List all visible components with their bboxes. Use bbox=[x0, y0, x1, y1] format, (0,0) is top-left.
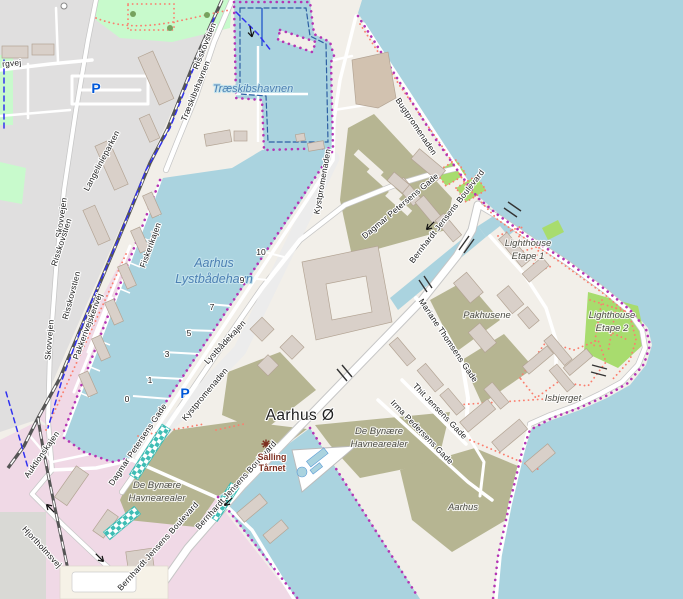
water-label-traeskibshavnen: Træskibshavnen bbox=[213, 83, 294, 95]
pier-number-1: 1 bbox=[148, 375, 153, 385]
area-label-isbjerget: Isbjerget bbox=[545, 393, 582, 404]
poi-label-salling-2: Tårnet bbox=[259, 463, 286, 473]
street-label-rgvej: rgvej bbox=[2, 57, 22, 69]
place-label-aarhus-o: Aarhus Ø bbox=[266, 407, 335, 424]
pier-number-3: 3 bbox=[165, 349, 170, 359]
water-label-lystbaadehavn-1: Aarhus bbox=[193, 256, 234, 270]
osm-map: P P Træskibshavnen Aarhus Lystbådehavn L… bbox=[0, 0, 683, 599]
area-label-pakhusene: Pakhusene bbox=[463, 310, 511, 321]
area-label-lighthouse1-1: Lighthouse bbox=[505, 238, 551, 249]
parking-icon: P bbox=[180, 385, 189, 401]
area-label-de-bynaere-e-1: De Bynære bbox=[355, 426, 403, 437]
poi-label-salling-1: Salling bbox=[258, 452, 287, 462]
area-label-aarhus-building: Aarhus bbox=[447, 502, 478, 513]
parking-icon: P bbox=[91, 80, 100, 96]
map-canvas[interactable]: P P Træskibshavnen Aarhus Lystbådehavn L… bbox=[0, 0, 683, 599]
roundabout-icon bbox=[61, 3, 67, 9]
pier-number-5: 5 bbox=[187, 328, 192, 338]
pier-number-9: 9 bbox=[240, 275, 245, 285]
area-label-de-bynaere-e-2: Havnearealer bbox=[350, 439, 408, 450]
area-label-lighthouse2-2: Etape 2 bbox=[596, 323, 629, 334]
area-label-de-bynaere-w-2: Havnearealer bbox=[128, 493, 186, 504]
area-label-lighthouse2-1: Lighthouse bbox=[589, 310, 635, 321]
area-label-de-bynaere-w-1: De Bynære bbox=[133, 480, 181, 491]
pier-number-0: 0 bbox=[125, 394, 130, 404]
pier-number-10: 10 bbox=[256, 247, 266, 257]
area-label-lighthouse1-2: Etape 1 bbox=[512, 251, 545, 262]
pier-number-7: 7 bbox=[210, 302, 215, 312]
